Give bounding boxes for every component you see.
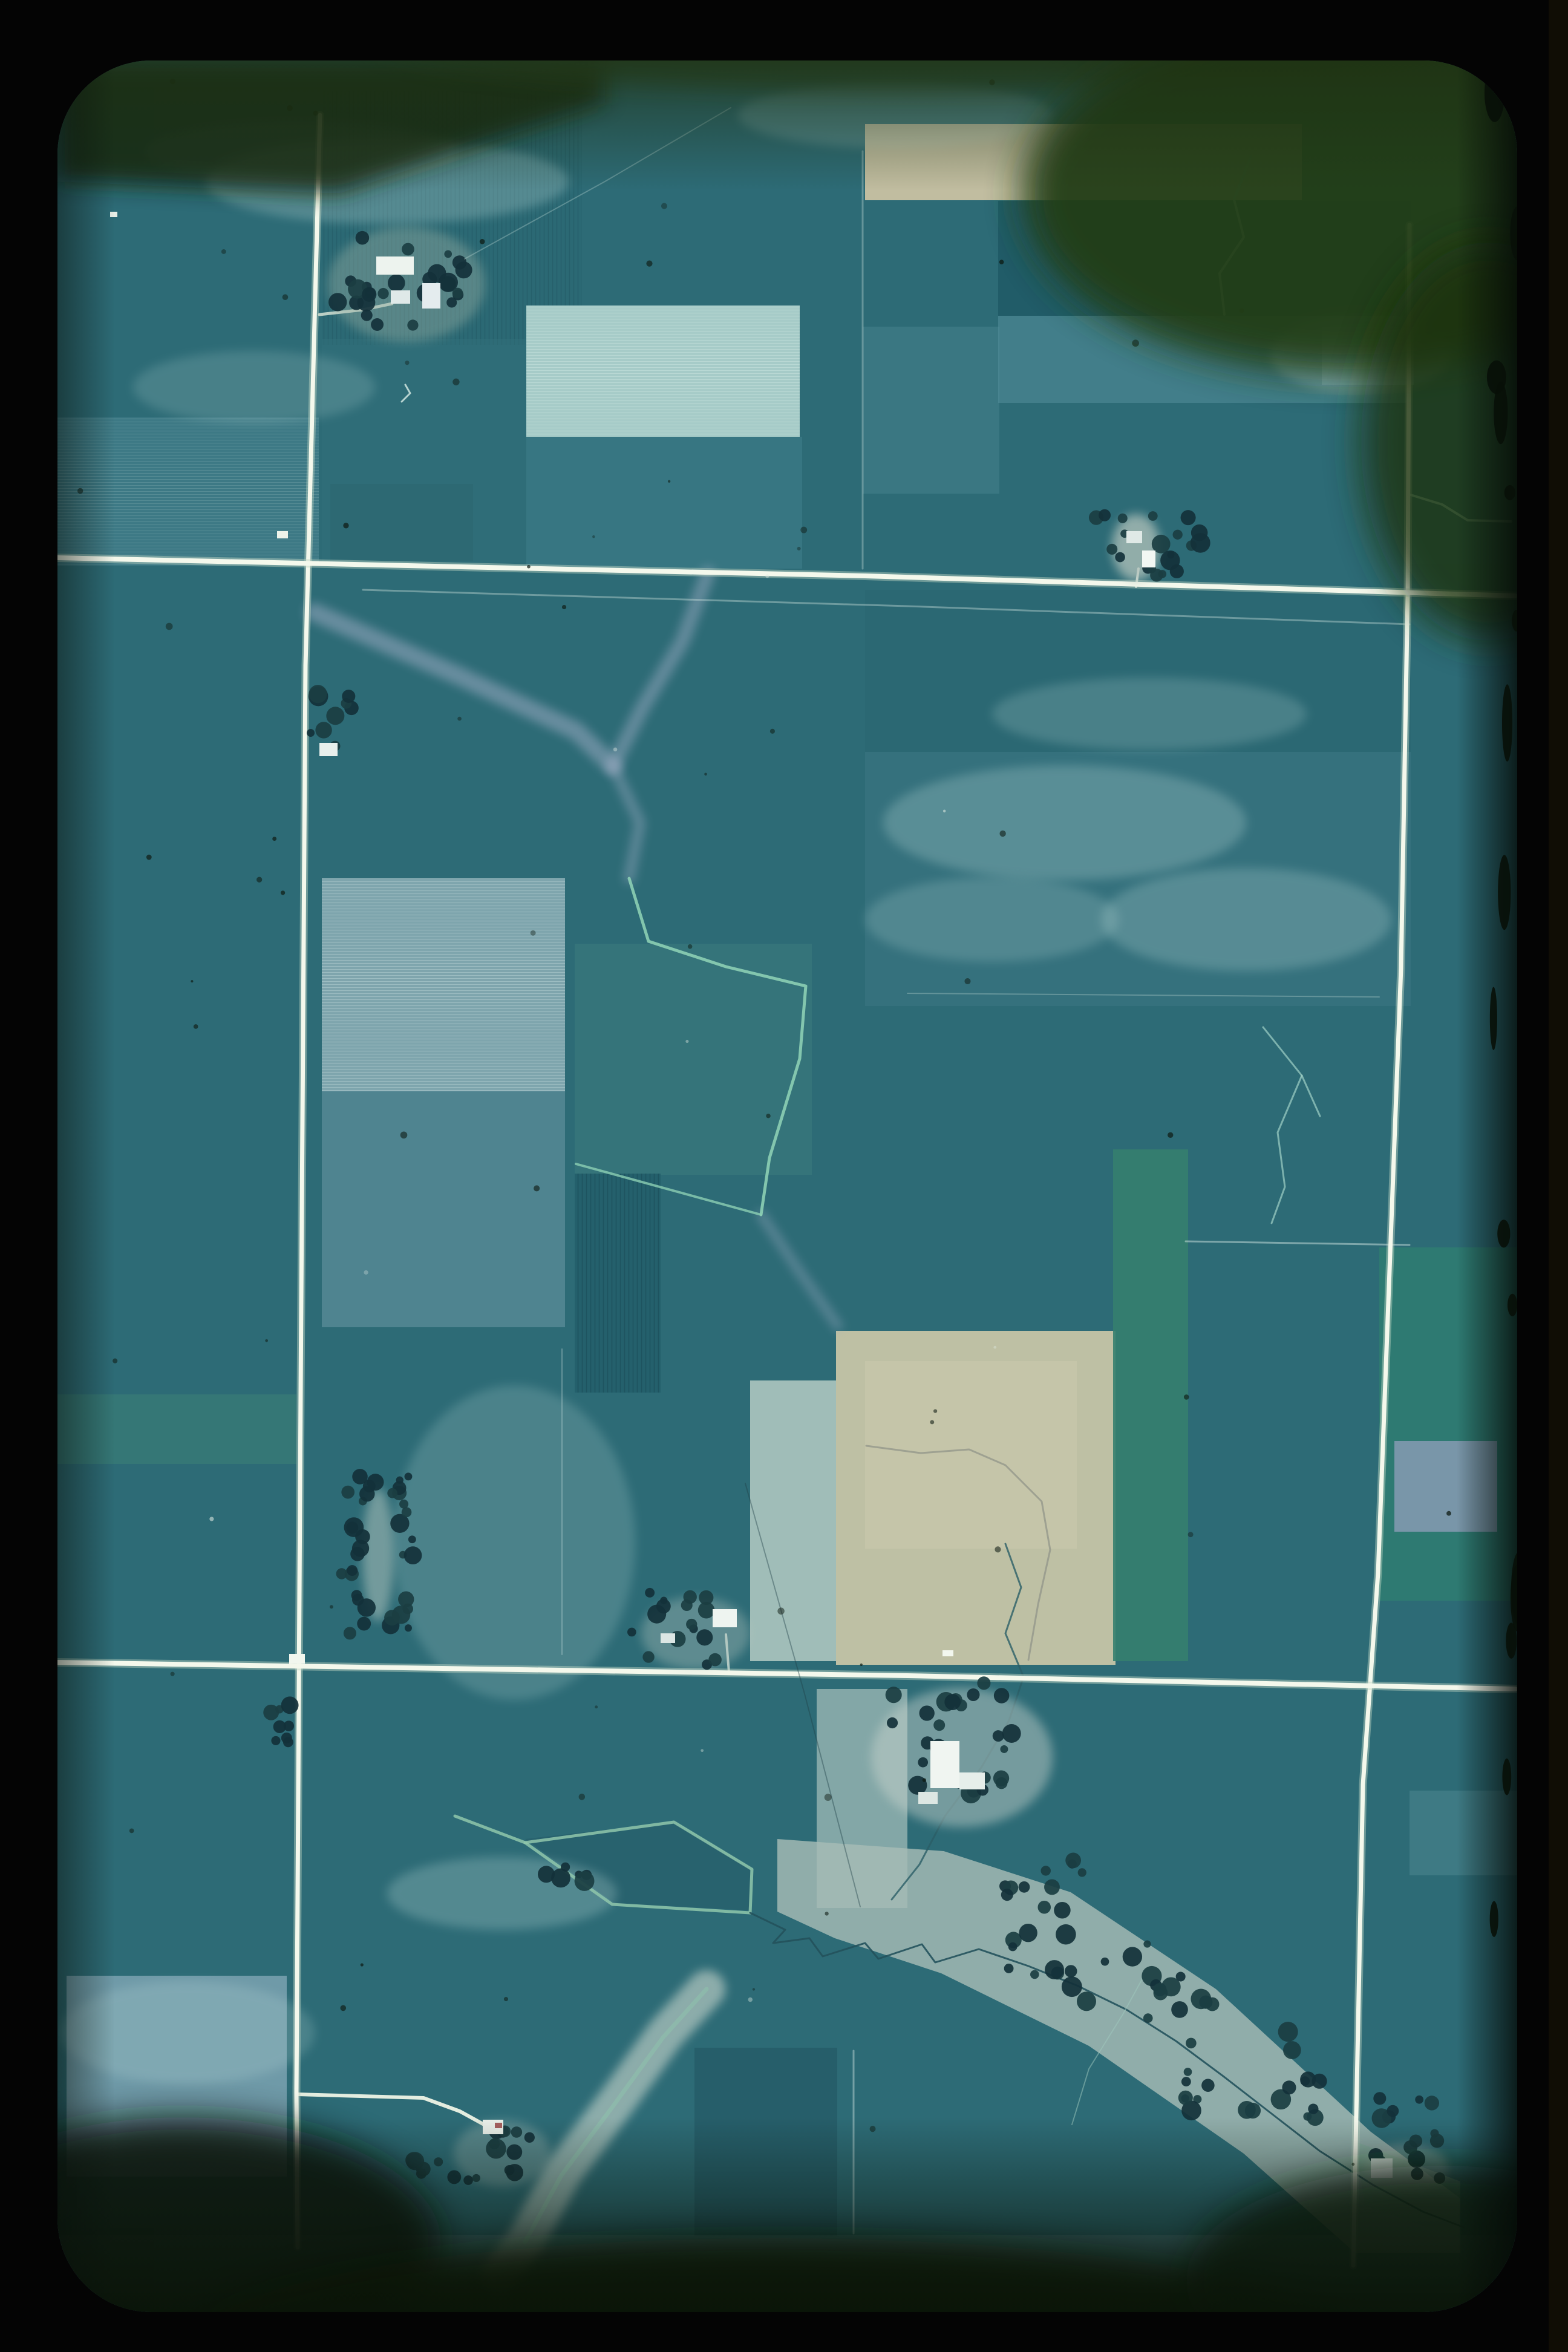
tree <box>1019 1924 1037 1942</box>
tree <box>362 287 376 302</box>
dust-speck-light <box>364 1270 368 1275</box>
tree <box>1123 1947 1142 1966</box>
dust-speck <box>661 203 667 209</box>
farm-building <box>289 1654 305 1664</box>
dust-speck <box>800 527 807 534</box>
tree <box>1283 2041 1301 2059</box>
tree <box>283 1737 293 1747</box>
dust-speck <box>933 1410 937 1413</box>
tree <box>993 1770 1009 1786</box>
tree <box>402 243 414 256</box>
dust-speck <box>504 1997 508 2001</box>
tree <box>1278 2022 1298 2042</box>
mount-edge-fuzz <box>1502 684 1512 762</box>
tree <box>1045 1960 1064 1979</box>
tree <box>1000 1745 1008 1753</box>
tree <box>384 1610 400 1625</box>
farm-building <box>959 1772 985 1789</box>
dust-speck <box>595 1705 598 1708</box>
vignette-band <box>57 60 115 2312</box>
dust-speck <box>534 1185 540 1191</box>
dust-speck <box>480 239 485 244</box>
dust-speck-light <box>748 1998 753 2002</box>
mount-edge-fuzz <box>1497 1220 1510 1247</box>
field-texture <box>575 1174 661 1393</box>
mount-edge-fuzz <box>1502 1759 1511 1795</box>
tree <box>1191 524 1208 541</box>
mount-edge-fuzz <box>1512 610 1521 632</box>
mount-edge-fuzz <box>1490 1901 1498 1937</box>
dust-speck <box>531 930 536 936</box>
dust-speck <box>753 1988 755 1990</box>
tree <box>1030 1970 1039 1979</box>
tree <box>681 1599 693 1611</box>
tree <box>1415 2096 1423 2104</box>
tree <box>1054 1902 1071 1919</box>
dust-speck <box>1184 1394 1189 1400</box>
tree <box>328 293 347 311</box>
tree <box>356 231 370 245</box>
tree <box>551 1868 570 1887</box>
dust-speck <box>592 535 595 538</box>
aerial-photo-svg <box>0 0 1568 2352</box>
dust-speck <box>457 717 462 721</box>
tree <box>405 1624 412 1632</box>
tree <box>377 288 388 299</box>
tree <box>1181 2077 1191 2086</box>
tree <box>1002 1724 1021 1743</box>
light-mottle <box>883 765 1246 880</box>
tree <box>1099 509 1111 521</box>
tree <box>428 264 446 283</box>
mount-edge-fuzz <box>1485 64 1504 122</box>
tree <box>367 1474 384 1491</box>
dust-speck <box>452 379 459 385</box>
dust-speck <box>860 1664 863 1666</box>
tree <box>341 1486 354 1499</box>
tree <box>1004 1964 1014 1973</box>
dust-speck <box>923 1778 926 1782</box>
tree <box>347 1565 358 1576</box>
dust-speck <box>343 523 348 528</box>
tree <box>1078 1868 1086 1877</box>
tree <box>361 310 373 321</box>
tree <box>342 690 355 703</box>
dust-speck-light <box>701 1749 704 1752</box>
dust-speck <box>797 547 801 550</box>
tree <box>994 1688 1010 1704</box>
farm-building <box>319 743 338 756</box>
dust-speck <box>405 361 409 365</box>
dust-speck <box>191 980 193 982</box>
tree <box>1143 1940 1151 1947</box>
light-mottle <box>387 1857 617 1930</box>
dust-speck <box>400 1131 408 1138</box>
light-mottle <box>133 351 375 423</box>
tree <box>944 1694 961 1710</box>
vignette-band <box>57 60 1517 191</box>
field <box>863 327 999 494</box>
farm-building <box>918 1792 938 1804</box>
tree <box>452 288 463 299</box>
tree <box>967 1688 979 1701</box>
dust-speck <box>129 1829 134 1834</box>
tree <box>886 1687 902 1703</box>
tree <box>1201 2079 1215 2092</box>
dust-speck <box>272 837 276 841</box>
dust-speck <box>579 1794 586 1800</box>
dust-speck <box>1188 1532 1194 1537</box>
tree <box>352 1540 369 1557</box>
dust-speck <box>930 1420 934 1425</box>
dust-speck <box>166 623 173 630</box>
tree <box>1282 2080 1296 2094</box>
tree <box>918 1757 928 1768</box>
field <box>322 1091 565 1327</box>
tree <box>1173 530 1183 540</box>
dust-speck <box>283 294 289 300</box>
tree <box>993 1730 1004 1742</box>
tree <box>1206 1998 1220 2011</box>
farm-building <box>942 1650 953 1656</box>
dust-speck <box>777 1607 785 1615</box>
tree <box>1153 1983 1166 1996</box>
dust-speck <box>221 249 226 254</box>
dust-speck <box>668 480 670 482</box>
dust-speck-light <box>765 574 769 578</box>
tree <box>686 1619 697 1630</box>
tree <box>647 1605 666 1624</box>
farm-building <box>391 290 410 304</box>
dust-speck <box>330 1605 333 1609</box>
tree <box>1171 2001 1188 2018</box>
tree <box>1019 1881 1030 1893</box>
dust-speck <box>964 978 970 984</box>
vignette-band <box>57 2117 1517 2312</box>
film-edge-strip <box>1549 0 1568 2352</box>
tree <box>408 1535 416 1543</box>
mount-edge-fuzz <box>1511 1564 1524 1632</box>
slide-mount <box>0 0 1568 2352</box>
dust-speck <box>646 261 652 267</box>
tree <box>1186 2038 1197 2049</box>
tree <box>309 685 327 703</box>
tree <box>977 1676 990 1690</box>
dust-speck <box>146 855 152 860</box>
tree <box>1008 1942 1018 1952</box>
tree <box>273 1720 286 1733</box>
tree <box>452 255 466 269</box>
tree <box>1062 1976 1082 1997</box>
dust-speck-light <box>943 809 946 812</box>
tree <box>402 1507 412 1517</box>
field-texture <box>526 305 800 437</box>
tree <box>315 722 332 738</box>
dust-speck <box>527 565 531 569</box>
tree <box>371 318 384 331</box>
tree <box>1425 2096 1439 2110</box>
tree <box>444 250 452 258</box>
tree <box>407 319 418 330</box>
tree <box>627 1628 636 1637</box>
tree <box>1238 2101 1256 2119</box>
dust-speck <box>265 1339 268 1342</box>
tree <box>1300 2076 1310 2086</box>
tree <box>1160 550 1180 570</box>
tree <box>1037 1901 1051 1914</box>
tree <box>642 1651 654 1662</box>
mount-edge-fuzz <box>1498 855 1511 930</box>
farm-building <box>277 531 288 538</box>
dust-speck <box>256 877 262 882</box>
tree <box>1308 2104 1318 2114</box>
dust-speck <box>1132 339 1139 347</box>
tree <box>1143 2013 1153 2023</box>
farm-building <box>1126 531 1142 543</box>
tree <box>1065 1965 1077 1978</box>
dust-speck <box>766 1114 770 1118</box>
tree <box>1184 2068 1192 2076</box>
tree <box>1001 1889 1013 1901</box>
tree <box>281 1696 299 1714</box>
dust-speck <box>995 1546 1001 1552</box>
dust-speck <box>704 773 707 776</box>
tree <box>388 274 405 292</box>
dust-speck-light <box>613 748 618 752</box>
tree <box>307 729 315 737</box>
tree <box>645 1588 655 1598</box>
field <box>526 437 802 569</box>
tree <box>344 1627 356 1639</box>
tree <box>933 1719 945 1731</box>
mount-edge-fuzz <box>1490 987 1497 1050</box>
tree <box>1101 1958 1109 1966</box>
tree <box>1106 544 1117 555</box>
tree <box>326 707 344 725</box>
tree <box>660 1596 667 1604</box>
vignette-band <box>1457 60 1520 2312</box>
light-mottle <box>992 678 1307 750</box>
dust-speck <box>688 944 693 949</box>
tree <box>1040 1866 1050 1875</box>
dust-speck <box>1168 1132 1173 1138</box>
tree <box>346 1521 358 1534</box>
mount-edge-fuzz <box>1504 485 1515 500</box>
farm-building <box>930 1741 959 1788</box>
tree <box>575 1871 595 1891</box>
tree <box>1118 514 1128 523</box>
tree <box>1181 510 1196 525</box>
tree <box>887 1717 898 1728</box>
dust-speck-light <box>993 1346 996 1349</box>
tree <box>271 1736 280 1745</box>
field <box>750 1380 837 1661</box>
tree <box>357 1617 371 1631</box>
tree <box>1150 569 1163 582</box>
farm-building <box>713 1609 737 1627</box>
tree <box>1178 2091 1193 2105</box>
dust-speck-light <box>685 1040 688 1043</box>
tree <box>699 1590 713 1605</box>
light-mottle <box>1101 868 1391 971</box>
dust-speck <box>999 260 1004 264</box>
tree <box>696 1629 713 1645</box>
mount-edge-fuzz <box>1487 361 1506 394</box>
mount-edge-fuzz <box>1508 1294 1517 1316</box>
dust-speck <box>562 605 566 609</box>
tree <box>1387 2105 1399 2117</box>
farm-building <box>422 283 440 309</box>
dust-speck <box>1446 1511 1451 1516</box>
tree <box>263 1705 279 1720</box>
farm-building <box>376 256 414 275</box>
tree <box>387 1488 397 1498</box>
light-mottle <box>865 877 1119 962</box>
dust-speck <box>825 1912 828 1915</box>
tree <box>1056 1924 1076 1945</box>
tree <box>1077 1991 1096 2011</box>
tree <box>1044 1880 1060 1895</box>
aerial-photo <box>0 0 1568 2352</box>
tree <box>920 1705 935 1720</box>
dust-speck <box>171 1672 175 1676</box>
field-texture <box>322 878 565 1091</box>
dust-speck <box>361 1963 364 1966</box>
dust-speck <box>281 890 285 895</box>
mount-edge-fuzz <box>1511 207 1524 260</box>
tree <box>1148 511 1158 521</box>
farm-building <box>661 1633 675 1643</box>
tree <box>708 1653 722 1667</box>
dust-speck <box>194 1024 198 1029</box>
farm-building <box>1142 550 1155 567</box>
tree <box>405 1472 413 1480</box>
tree <box>336 1568 347 1579</box>
light-mottle <box>393 1385 635 1700</box>
tree <box>352 1594 364 1606</box>
tree <box>1373 2092 1386 2105</box>
dust-speck <box>770 729 775 734</box>
dust-speck-light <box>209 1517 214 1521</box>
field <box>1113 1149 1188 1661</box>
tree <box>1115 552 1125 563</box>
tree <box>1065 1853 1081 1869</box>
dust-speck <box>340 2005 346 2011</box>
dust-speck <box>825 1794 832 1801</box>
tree <box>561 1863 570 1872</box>
tree <box>404 1546 422 1564</box>
dust-speck <box>999 831 1005 837</box>
